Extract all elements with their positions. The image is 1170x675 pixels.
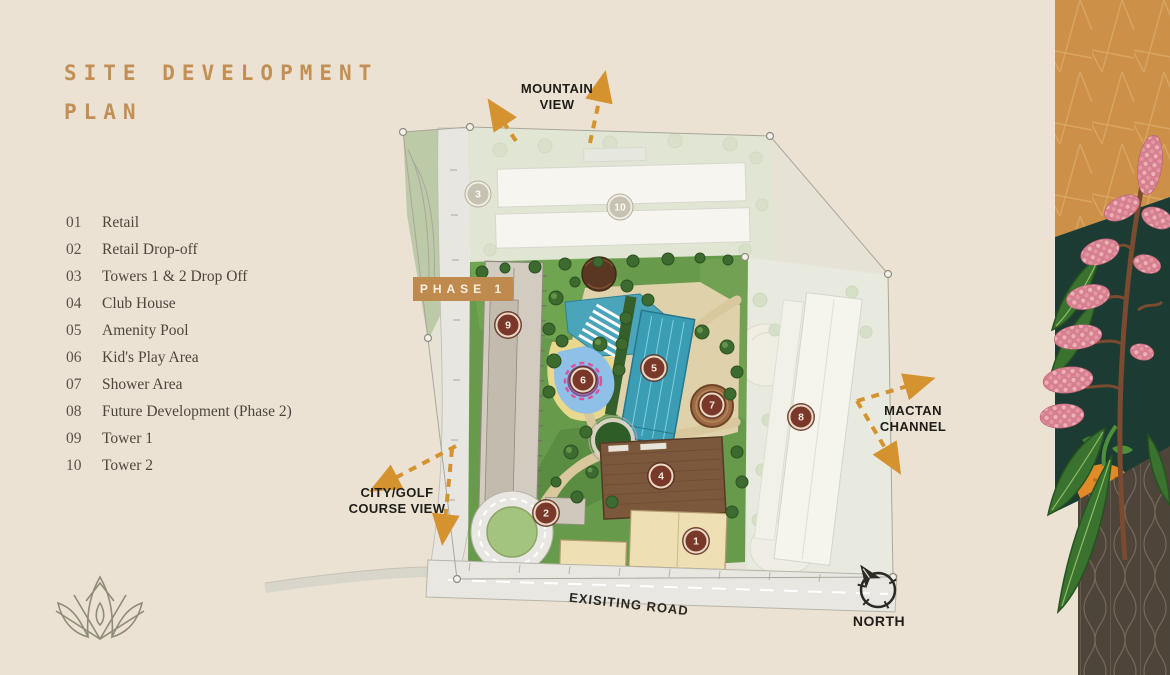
map-marker-tower-1: 9: [496, 313, 521, 338]
city-golf-view-label: CITY/GOLF COURSE VIEW: [349, 485, 446, 517]
legend-item-02: 02 Retail Drop-off: [66, 236, 292, 263]
legend-label: Towers 1 & 2 Drop Off: [102, 268, 247, 286]
map-marker-club-house: 4: [649, 464, 674, 489]
mountain-view-label: MOUNTAIN VIEW: [521, 81, 593, 113]
marker-number: 1: [693, 535, 699, 547]
legend-label: Amenity Pool: [102, 322, 189, 340]
marker-number: 8: [798, 411, 804, 423]
legend-number: 10: [66, 457, 102, 475]
legend-number: 05: [66, 322, 102, 340]
page-title: SITE DEVELOPMENT PLAN: [64, 54, 378, 132]
marker-number: 4: [658, 470, 664, 482]
legend-item-08: 08 Future Development (Phase 2): [66, 398, 292, 425]
future-development-block: [735, 257, 893, 577]
legend-label: Kid's Play Area: [102, 349, 199, 367]
marker-number: 7: [709, 399, 715, 411]
retail-building: [629, 510, 727, 569]
map-marker-towers-dropoff: 3: [466, 182, 491, 207]
legend-item-05: 05 Amenity Pool: [66, 317, 292, 344]
legend-label: Retail Drop-off: [102, 241, 198, 259]
page-title-line1: SITE DEVELOPMENT: [64, 54, 378, 93]
legend-item-09: 09 Tower 1: [66, 425, 292, 452]
legend-label: Future Development (Phase 2): [102, 403, 292, 421]
site-development-plan-page: SITE DEVELOPMENT PLAN 01 Retail 02 Retai…: [0, 0, 1170, 675]
north-label: NORTH: [853, 613, 905, 629]
legend-item-07: 07 Shower Area: [66, 371, 292, 398]
legend-list: 01 Retail 02 Retail Drop-off 03 Towers 1…: [66, 209, 292, 479]
map-marker-shower-area: 7: [700, 393, 725, 418]
marker-number: 9: [505, 319, 511, 331]
legend-number: 06: [66, 349, 102, 367]
legend-number: 07: [66, 376, 102, 394]
marker-number: 6: [580, 374, 586, 386]
phase-1-badge: PHASE 1: [413, 277, 513, 301]
page-title-line2: PLAN: [64, 93, 378, 132]
decorative-panel: [1039, 0, 1170, 675]
legend-label: Retail: [102, 214, 139, 232]
legend-label: Shower Area: [102, 376, 183, 394]
map-marker-retail-dropoff: 2: [534, 501, 559, 526]
legend-item-06: 06 Kid's Play Area: [66, 344, 292, 371]
legend-number: 09: [66, 430, 102, 448]
lotus-logo-icon: [56, 577, 144, 639]
marker-number: 3: [475, 188, 481, 200]
legend-label: Tower 2: [102, 457, 153, 475]
legend-number: 02: [66, 241, 102, 259]
legend-item-03: 03 Towers 1 & 2 Drop Off: [66, 263, 292, 290]
legend-item-04: 04 Club House: [66, 290, 292, 317]
legend-number: 04: [66, 295, 102, 313]
legend-label: Tower 1: [102, 430, 153, 448]
marker-number: 2: [543, 507, 549, 519]
legend-number: 08: [66, 403, 102, 421]
map-marker-amenity-pool: 5: [642, 356, 667, 381]
map-marker-tower-2: 10: [608, 195, 633, 220]
legend-number: 01: [66, 214, 102, 232]
legend-number: 03: [66, 268, 102, 286]
marker-number: 5: [651, 362, 657, 374]
map-marker-future-development: 8: [789, 405, 814, 430]
legend-item-01: 01 Retail: [66, 209, 292, 236]
legend-item-10: 10 Tower 2: [66, 452, 292, 479]
map-marker-kids-play-area: 6: [571, 368, 596, 393]
legend-label: Club House: [102, 295, 176, 313]
mactan-channel-label: MACTAN CHANNEL: [880, 403, 946, 435]
marker-number: 10: [614, 201, 626, 213]
map-marker-retail: 1: [684, 529, 709, 554]
